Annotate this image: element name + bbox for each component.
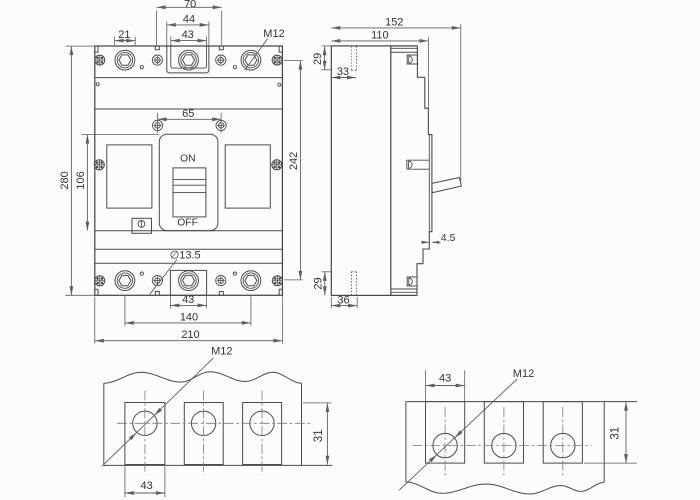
svg-text:31: 31 bbox=[609, 427, 621, 440]
svg-text:43: 43 bbox=[439, 373, 451, 385]
svg-text:70: 70 bbox=[184, 0, 196, 11]
svg-text:210: 210 bbox=[181, 329, 199, 341]
svg-text:43: 43 bbox=[182, 294, 194, 306]
svg-text:29: 29 bbox=[312, 277, 324, 289]
svg-text:21: 21 bbox=[118, 29, 130, 41]
svg-text:43: 43 bbox=[182, 29, 194, 41]
svg-text:106: 106 bbox=[75, 171, 87, 189]
svg-text:44: 44 bbox=[183, 14, 195, 26]
svg-text:36: 36 bbox=[337, 294, 349, 306]
svg-text:M12: M12 bbox=[513, 368, 534, 380]
svg-text:∅13.5: ∅13.5 bbox=[170, 249, 201, 261]
svg-text:4.5: 4.5 bbox=[441, 232, 456, 244]
svg-text:110: 110 bbox=[371, 30, 389, 42]
svg-text:OFF: OFF bbox=[177, 218, 198, 229]
svg-text:280: 280 bbox=[59, 171, 71, 189]
svg-text:29: 29 bbox=[312, 53, 324, 65]
svg-text:242: 242 bbox=[288, 152, 300, 170]
svg-text:33: 33 bbox=[337, 66, 349, 78]
svg-text:65: 65 bbox=[182, 108, 194, 120]
svg-text:31: 31 bbox=[313, 429, 325, 442]
svg-text:152: 152 bbox=[385, 16, 403, 28]
svg-text:M12: M12 bbox=[263, 28, 284, 40]
svg-text:43: 43 bbox=[140, 480, 152, 492]
svg-text:140: 140 bbox=[180, 311, 198, 323]
svg-text:M12: M12 bbox=[211, 346, 232, 358]
svg-text:ON: ON bbox=[180, 153, 195, 164]
